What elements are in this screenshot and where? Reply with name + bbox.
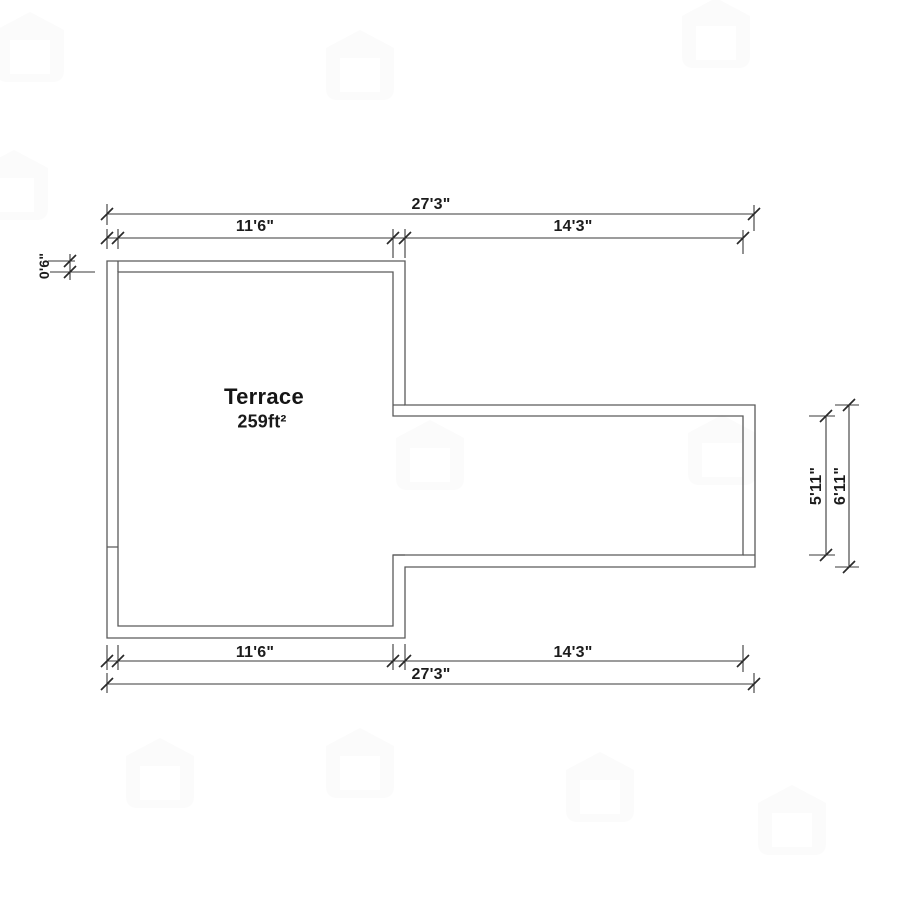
dim-label-right-outer: 6'11" xyxy=(832,467,850,505)
room-name-label: Terrace xyxy=(224,384,304,410)
floorplan-drawing xyxy=(0,0,900,900)
dim-label-top-left: 11'6" xyxy=(236,218,274,236)
terrace-walls xyxy=(107,261,755,638)
dim-label-top-right: 14'3" xyxy=(553,218,592,236)
dim-label-top-total: 27'3" xyxy=(411,196,450,214)
dim-label-bottom-total: 27'3" xyxy=(411,666,450,684)
wall-outer-outline xyxy=(107,261,755,638)
dim-label-right-inner: 5'11" xyxy=(808,467,826,505)
dim-top-chain xyxy=(101,229,749,258)
wall-joint-seams xyxy=(107,261,755,555)
dim-label-bottom-right: 14'3" xyxy=(553,644,592,662)
room-area-label: 259ft² xyxy=(237,412,286,433)
dim-label-wall-thickness: 0'6" xyxy=(36,253,52,279)
watermark-pattern xyxy=(0,0,826,855)
wall-inner-outline xyxy=(118,272,743,626)
floorplan-canvas: 27'3" 11'6" 14'3" 0'6" 5'11" 6'11" 11'6"… xyxy=(0,0,900,900)
dim-wall-thickness xyxy=(48,254,95,280)
dim-label-bottom-left: 11'6" xyxy=(236,644,274,662)
